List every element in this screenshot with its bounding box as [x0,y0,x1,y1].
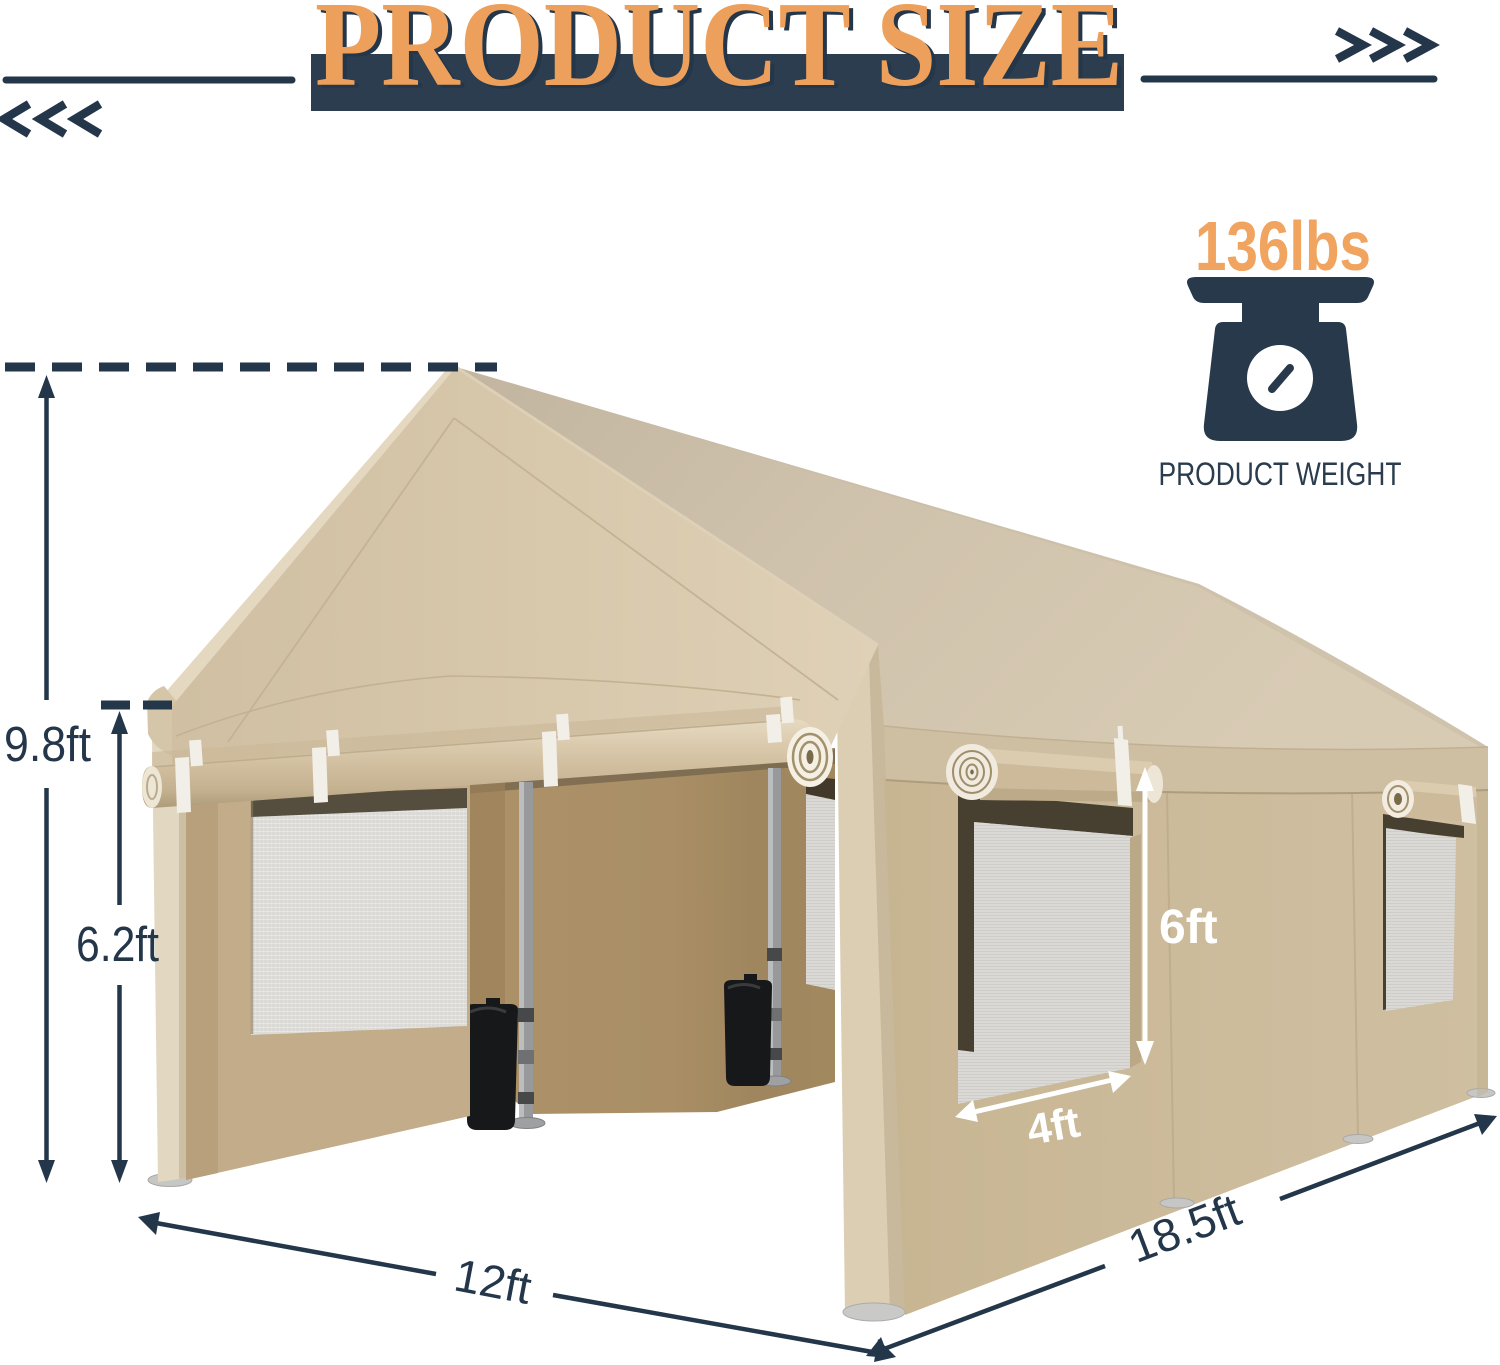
svg-text:136lbs: 136lbs [1195,207,1371,285]
svg-text:6.2ft: 6.2ft [76,918,159,972]
svg-text:4ft: 4ft [1023,1098,1083,1154]
svg-text:9.8ft: 9.8ft [4,718,91,772]
svg-text:PRODUCT SIZE: PRODUCT SIZE [315,0,1123,112]
svg-text:6ft: 6ft [1159,901,1218,954]
svg-text:PRODUCT WEIGHT: PRODUCT WEIGHT [1159,456,1402,492]
